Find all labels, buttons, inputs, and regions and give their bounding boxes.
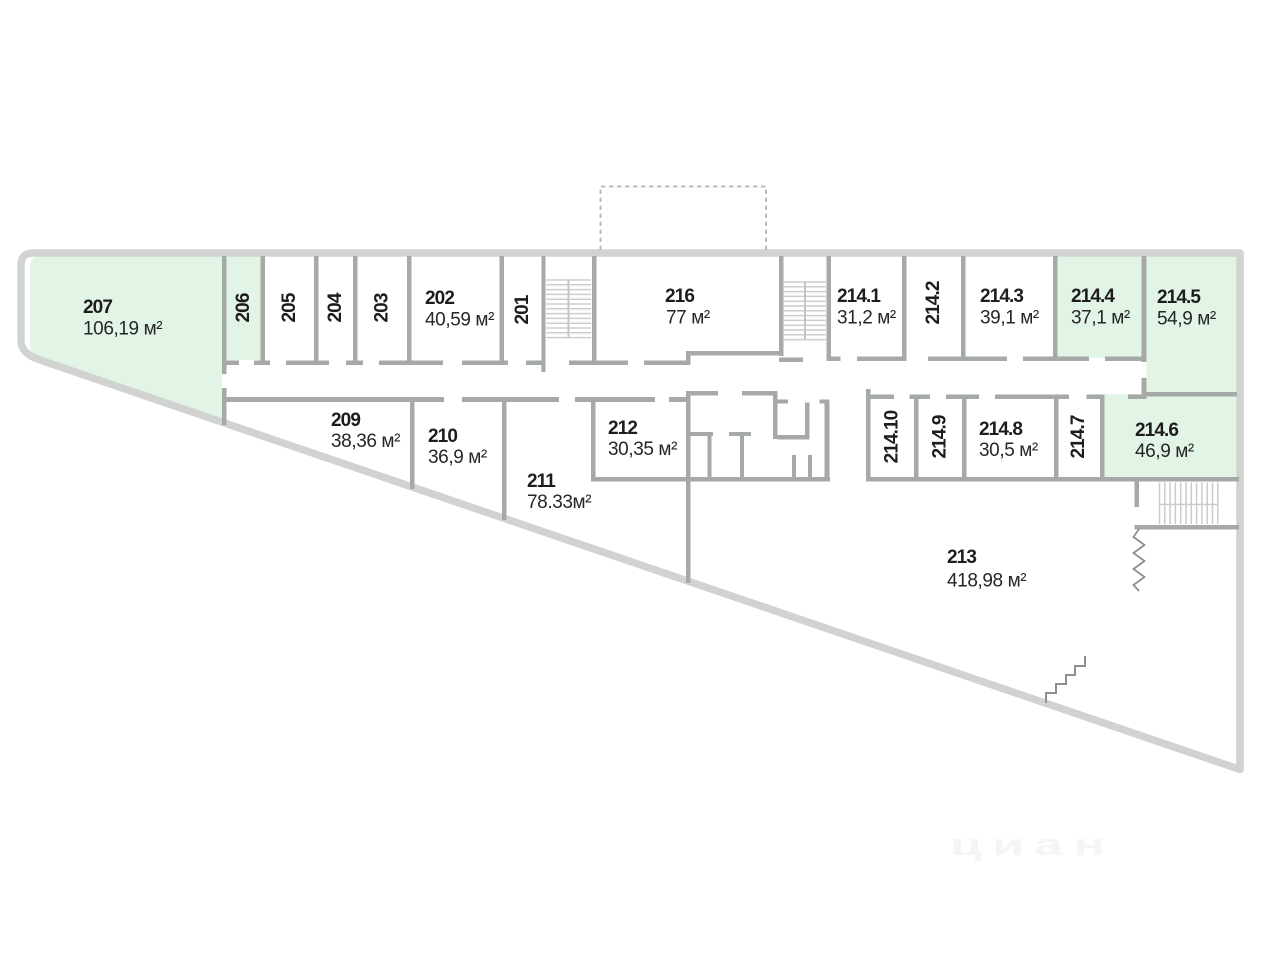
svg-text:78.33м²: 78.33м² [527,492,591,513]
svg-text:40,59 м²: 40,59 м² [425,310,494,331]
svg-text:36,9 м²: 36,9 м² [428,447,487,468]
svg-text:201: 201 [512,294,533,324]
svg-text:30,35 м²: 30,35 м² [608,439,677,460]
svg-text:30,5 м²: 30,5 м² [979,440,1038,461]
svg-text:214.7: 214.7 [1068,415,1089,458]
svg-text:211: 211 [527,471,556,492]
svg-text:38,36 м²: 38,36 м² [331,431,400,452]
svg-text:216: 216 [665,286,694,307]
svg-text:214.2: 214.2 [923,281,944,324]
svg-text:202: 202 [425,288,454,309]
svg-text:214.9: 214.9 [930,415,951,458]
svg-text:46,9 м²: 46,9 м² [1135,441,1194,462]
svg-text:212: 212 [608,418,637,439]
svg-text:54,9 м²: 54,9 м² [1157,309,1216,330]
svg-text:210: 210 [428,426,457,447]
svg-text:106,19 м²: 106,19 м² [83,319,162,340]
svg-text:209: 209 [331,410,360,431]
svg-text:214.4: 214.4 [1071,286,1115,307]
svg-text:214.1: 214.1 [837,286,881,307]
svg-text:213: 213 [947,547,976,568]
svg-text:205: 205 [279,292,300,322]
svg-text:214.3: 214.3 [980,286,1023,307]
svg-text:77 м²: 77 м² [666,308,710,329]
svg-text:204: 204 [325,292,346,322]
svg-text:207: 207 [83,297,112,318]
svg-text:203: 203 [372,293,393,322]
svg-text:31,2 м²: 31,2 м² [837,308,896,329]
svg-text:37,1 м²: 37,1 м² [1071,308,1130,329]
svg-text:418,98 м²: 418,98 м² [947,571,1026,592]
svg-text:206: 206 [233,293,254,322]
svg-text:214.8: 214.8 [979,419,1022,440]
svg-text:214.6: 214.6 [1135,420,1178,441]
svg-text:39,1 м²: 39,1 м² [980,308,1039,329]
svg-text:214.10: 214.10 [882,410,903,463]
svg-text:214.5: 214.5 [1157,287,1201,308]
svg-text:циан: циан [950,827,1115,862]
